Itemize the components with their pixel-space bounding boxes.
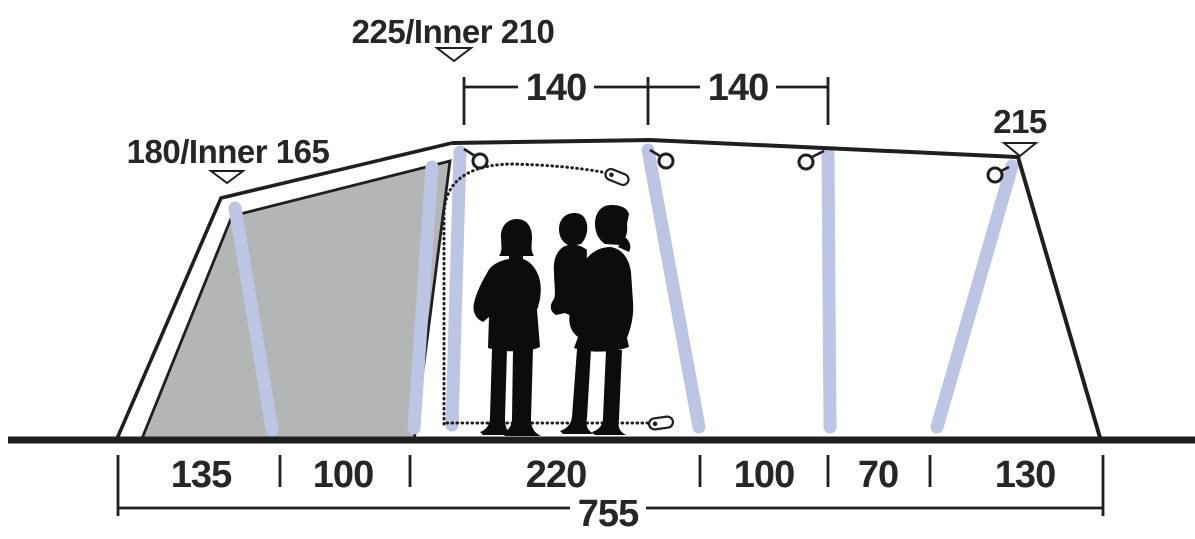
pole-ring-icon bbox=[799, 155, 813, 169]
air-pole-rear-mid bbox=[828, 153, 830, 427]
zipper-body bbox=[604, 167, 630, 186]
person-with-child-silhouette bbox=[551, 205, 633, 435]
arrow-down-icon bbox=[1004, 143, 1036, 156]
diagram-canvas: 140 140 225/Inner 210 180/Inner 165 215 … bbox=[0, 0, 1195, 539]
top-dim-label-right: 140 bbox=[708, 67, 768, 109]
zipper-pull-icon bbox=[648, 416, 673, 430]
zipper-pull-icon bbox=[604, 167, 630, 186]
total-length-dimension: 755 bbox=[118, 493, 1103, 535]
total-length-label: 755 bbox=[578, 493, 639, 535]
tent-dimension-diagram: 140 140 225/Inner 210 180/Inner 165 215 … bbox=[0, 0, 1195, 539]
top-dim-label-left: 140 bbox=[526, 67, 586, 109]
pole-ring-icon bbox=[659, 154, 673, 168]
person-silhouette-left bbox=[473, 219, 541, 436]
air-pole-mid bbox=[648, 150, 699, 427]
height-label-front-peak: 180/Inner 165 bbox=[127, 133, 330, 170]
segment-length-label: 135 bbox=[171, 454, 232, 496]
child-head bbox=[559, 213, 587, 246]
segment-length-label: 70 bbox=[858, 454, 898, 496]
segment-length-label: 100 bbox=[313, 454, 373, 496]
pole-ring-icon bbox=[473, 154, 487, 168]
pole-ring-icon bbox=[988, 168, 1002, 182]
arrow-down-icon bbox=[437, 48, 471, 61]
height-label-rear-peak: 215 bbox=[993, 103, 1047, 140]
front-panel-shaded bbox=[141, 161, 450, 441]
zipper-body bbox=[648, 416, 673, 430]
segment-length-label: 220 bbox=[526, 454, 586, 496]
top-width-dimension: 140 140 bbox=[464, 67, 828, 125]
air-pole-rear bbox=[937, 166, 1012, 427]
arrow-down-icon bbox=[211, 171, 243, 183]
adult-leg bbox=[560, 349, 594, 434]
height-label-main-peak: 225/Inner 210 bbox=[352, 13, 555, 50]
air-pole-main-peak bbox=[452, 152, 460, 425]
segment-length-label: 130 bbox=[995, 454, 1055, 496]
child-body bbox=[551, 245, 587, 316]
segment-length-label: 100 bbox=[734, 454, 794, 496]
person-torso bbox=[473, 258, 540, 351]
